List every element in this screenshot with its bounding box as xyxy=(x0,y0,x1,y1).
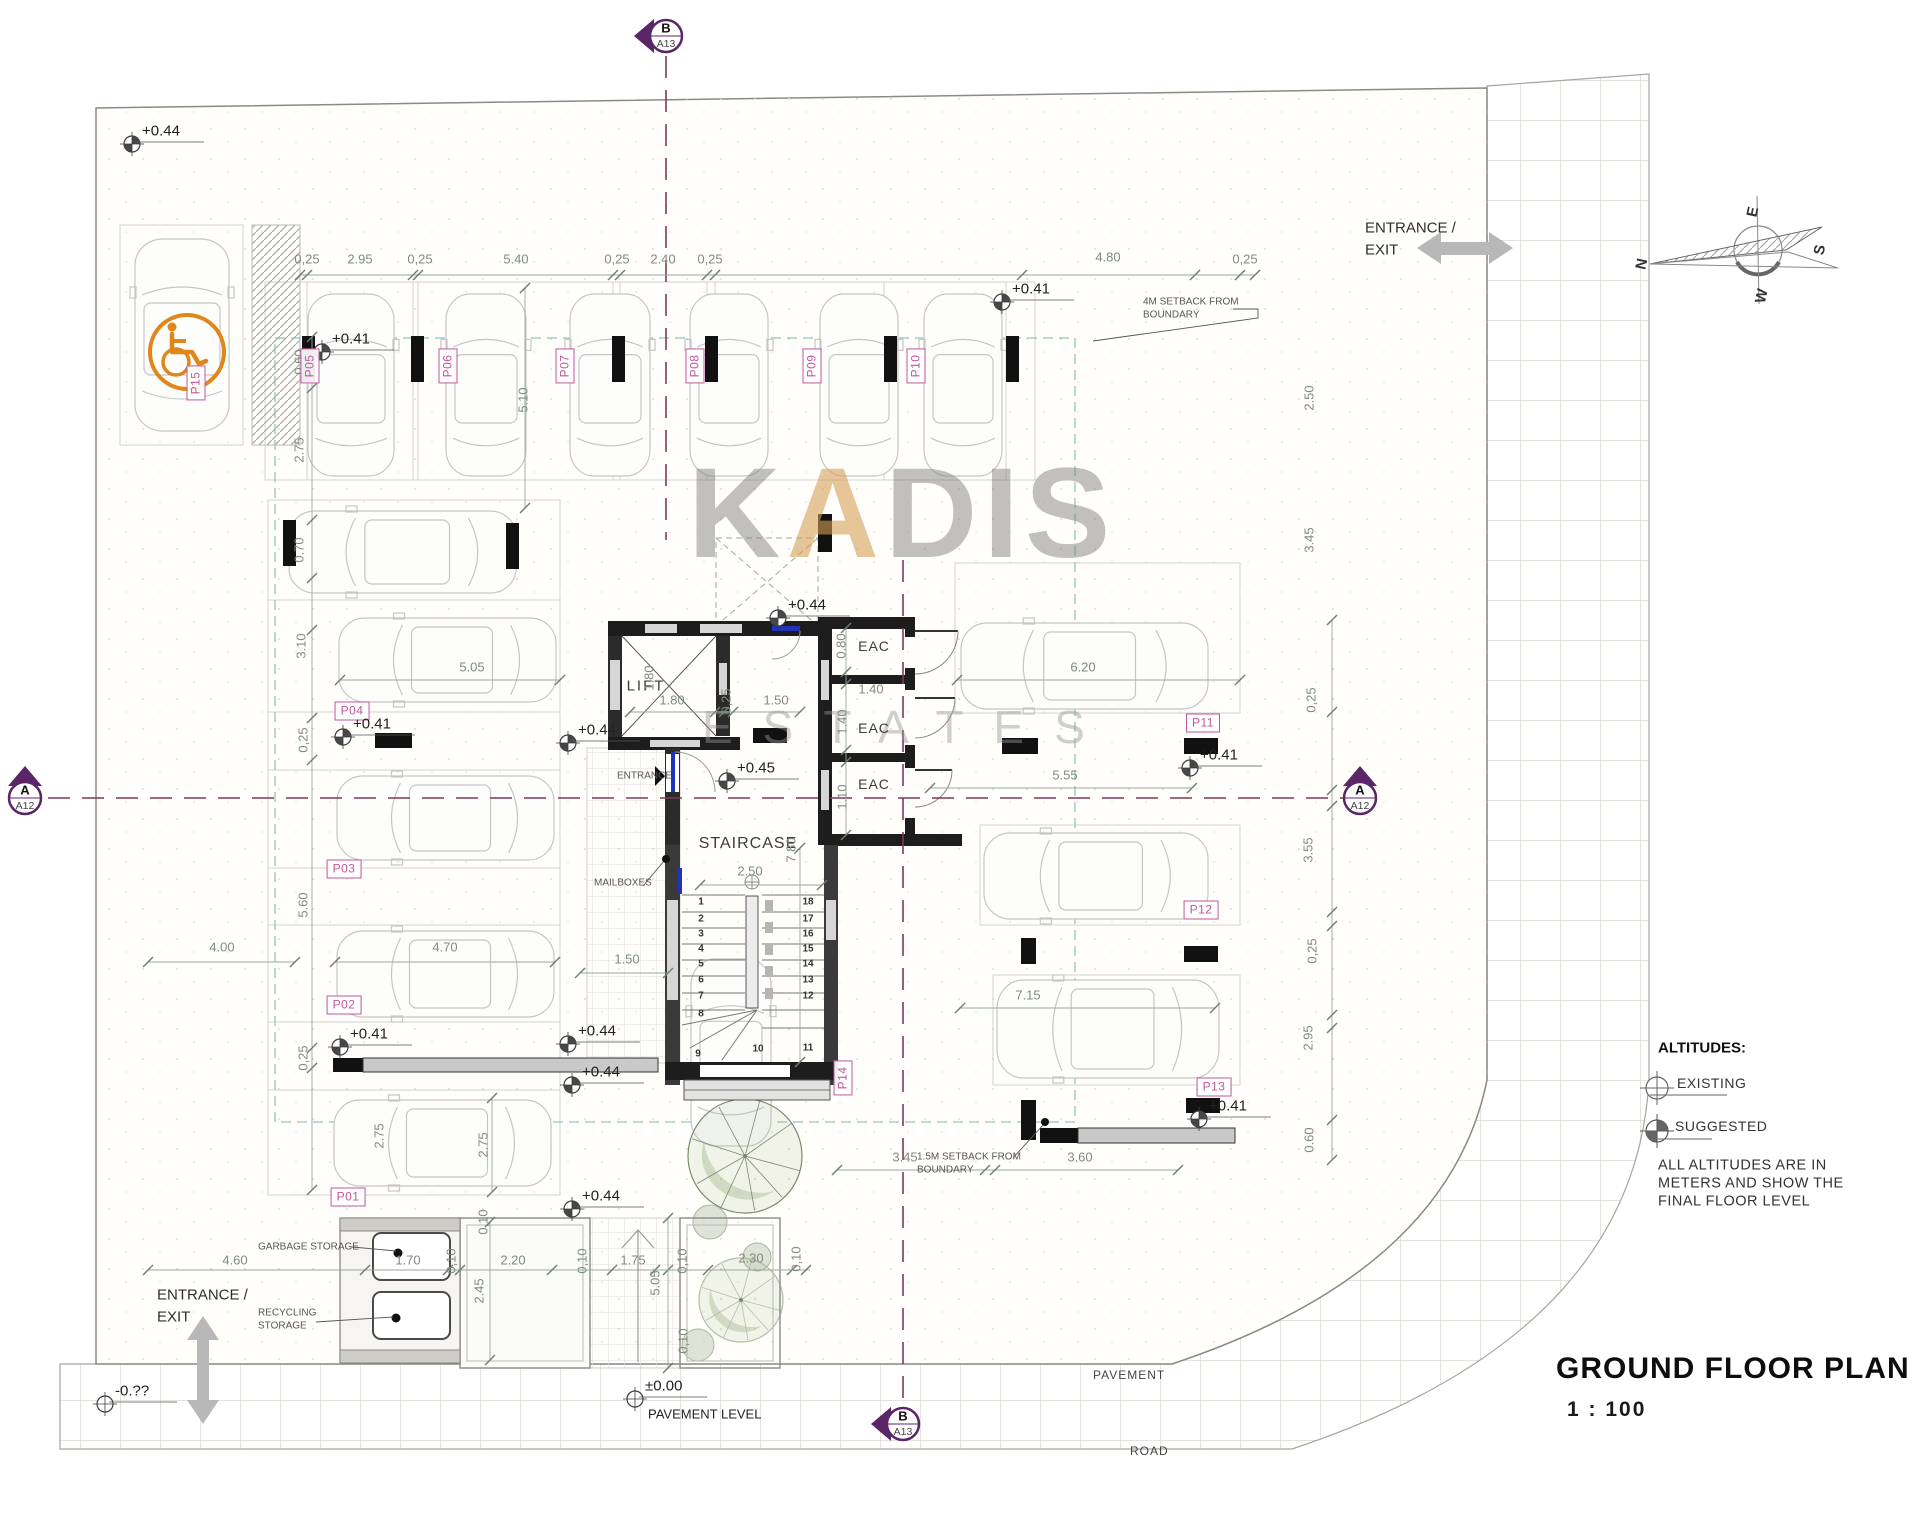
parking-spot-label: P13 xyxy=(1197,1078,1232,1097)
car-outline xyxy=(441,294,531,476)
dimension-label: 0,10 xyxy=(790,1246,805,1271)
dimension-label: 5.55 xyxy=(1052,769,1077,784)
text-label: STORAGE xyxy=(258,1320,307,1332)
parking-spot-label: P06 xyxy=(439,349,458,384)
parking-spot-label: P11 xyxy=(1186,714,1220,733)
legend-heading: ALTITUDES: xyxy=(1658,1039,1746,1056)
text-label: BOUNDARY xyxy=(1143,309,1200,321)
legend-note-2: METERS AND SHOW THE xyxy=(1658,1176,1844,1193)
altitude-value: +0.44 xyxy=(582,1063,620,1080)
parking-spot-label: P08 xyxy=(686,349,705,384)
stair-number: 18 xyxy=(802,896,813,908)
dimension-label: 2.95 xyxy=(1302,1025,1317,1050)
dimension-label: 4.70 xyxy=(432,941,457,956)
section-marker-top: A xyxy=(20,784,29,799)
parking-spot-label: P01 xyxy=(331,1188,366,1207)
text-label: 4M SETBACK FROM xyxy=(1143,296,1239,308)
car-outline xyxy=(337,771,554,865)
tree xyxy=(688,1099,802,1213)
tree xyxy=(699,1258,783,1342)
altitude-value: +0.41 xyxy=(1209,1097,1247,1114)
dimension-label: 0,25 xyxy=(297,727,312,752)
dimension-label: 2.75 xyxy=(373,1123,388,1148)
altitude-value: +0.41 xyxy=(353,715,391,732)
dimension-label: 0,25 xyxy=(407,253,432,268)
dimension-label: 0,10 xyxy=(676,1248,691,1273)
stair-number: 3 xyxy=(698,928,704,940)
recycling-bin-dot xyxy=(392,1314,401,1323)
text-label: MAILBOXES xyxy=(594,877,652,889)
handicap-hatch-strip xyxy=(252,225,300,445)
dimension-label: 0,25 xyxy=(1232,253,1257,268)
stair-number: 15 xyxy=(802,943,813,955)
text-label: EXIT xyxy=(157,1308,190,1325)
stair-number: 17 xyxy=(802,913,813,925)
text-label: BOUNDARY xyxy=(917,1164,974,1176)
dimension-label: 0,10 xyxy=(576,1248,591,1273)
text-label: STAIRCASE xyxy=(699,835,798,853)
parking-spot-label: P12 xyxy=(1184,901,1219,920)
text-label: PAVEMENT xyxy=(1093,1369,1165,1383)
watermark-brand: KADIS xyxy=(688,440,1116,587)
stair-number: 12 xyxy=(802,990,813,1002)
dimension-label: 0.60 xyxy=(1303,1127,1318,1152)
dimension-label: 1.80 xyxy=(659,694,684,709)
stair-number: 10 xyxy=(752,1043,763,1055)
section-marker-top: B xyxy=(661,22,670,37)
plan-linework xyxy=(0,0,1920,1517)
dimension-label: 0,25 xyxy=(294,253,319,268)
parking-spot-label: P10 xyxy=(907,349,926,384)
stair-number: 7 xyxy=(698,990,704,1002)
text-label: EXIT xyxy=(1365,241,1398,258)
stair-number: 2 xyxy=(698,913,704,925)
section-marker-top: B xyxy=(898,1410,907,1425)
text-label: RECYCLING xyxy=(258,1307,316,1319)
stair-number: 14 xyxy=(802,958,813,970)
dimension-label: 1.70 xyxy=(395,1254,420,1269)
dimension-label: 0,25 xyxy=(604,253,629,268)
car-outline xyxy=(289,506,516,598)
dimension-label: 1.40 xyxy=(836,709,851,734)
text-label: GARBAGE STORAGE xyxy=(258,1241,359,1253)
legend-note-1: ALL ALTITUDES ARE IN xyxy=(1658,1158,1827,1175)
stair-number: 6 xyxy=(698,974,704,986)
parking-spot-label: P15 xyxy=(187,366,206,401)
dimension-label: 7.15 xyxy=(1015,989,1040,1004)
dimension-label: 4.00 xyxy=(209,941,234,956)
text-label: ENTRANCE / xyxy=(1365,219,1456,236)
dimension-label: 0,10 xyxy=(445,1248,460,1273)
entrance-door-top xyxy=(772,626,800,631)
dimension-label: 2.50 xyxy=(1303,385,1318,410)
altitude-value: -0.?? xyxy=(115,1382,149,1399)
section-marker-top: A xyxy=(1355,784,1364,799)
parking-spot-label: P02 xyxy=(327,996,362,1015)
dimension-label: 5.05 xyxy=(459,661,484,676)
altitude-value: +0.41 xyxy=(350,1025,388,1042)
altitude-value: +0.44 xyxy=(788,596,826,613)
text-label: ENTRANCE / xyxy=(157,1286,248,1303)
text-label: EAC xyxy=(858,776,890,792)
legend-existing: EXISTING xyxy=(1677,1075,1746,1091)
stair-number: 1 xyxy=(698,896,704,908)
dimension-label: 0.70 xyxy=(293,537,308,562)
dimension-label: 1.75 xyxy=(620,1254,645,1269)
dimension-label: 2.50 xyxy=(737,865,762,880)
dimension-label: 2.75 xyxy=(477,1132,492,1157)
dimension-label: 1.50 xyxy=(614,953,639,968)
dimension-label: 4.60 xyxy=(222,1254,247,1269)
floor-plan-canvas: KADIS ESTATES GROUND FLOOR PLAN 1 : 100 … xyxy=(0,0,1920,1517)
dimension-label: 5.40 xyxy=(503,253,528,268)
stair-number: 4 xyxy=(698,943,704,955)
car-outline xyxy=(984,828,1208,924)
dimension-label: 1.40 xyxy=(858,683,883,698)
dimension-label: 4.80 xyxy=(1095,251,1120,266)
dimension-label: 0,10 xyxy=(677,1328,692,1353)
dimension-label: 3.10 xyxy=(295,633,310,658)
altitude-value: ±0.00 xyxy=(645,1377,682,1394)
stair-number: 13 xyxy=(802,974,813,986)
legend-suggested: SUGGESTED xyxy=(1675,1118,1767,1134)
text-label: EAC xyxy=(858,720,890,736)
dimension-label: 1.80 xyxy=(643,665,658,690)
dimension-label: 0,25 xyxy=(720,688,735,713)
dimension-label: 0,25 xyxy=(297,1045,312,1070)
dimension-label: 3.45 xyxy=(1303,527,1318,552)
altitude-value: +0.44 xyxy=(578,721,616,738)
text-label: 1.5M SETBACK FROM xyxy=(917,1151,1021,1163)
parking-spot-label: P14 xyxy=(834,1061,853,1096)
dimension-label: 2.40 xyxy=(650,253,675,268)
page-title: GROUND FLOOR PLAN xyxy=(1556,1352,1910,1386)
stair-number: 11 xyxy=(803,1042,814,1054)
stair-number: 9 xyxy=(695,1048,701,1060)
dimension-label: 0,25 xyxy=(1305,687,1320,712)
altitude-value: +0.41 xyxy=(1012,280,1050,297)
dimension-label: 3.55 xyxy=(1302,837,1317,862)
dimension-label: 3.60 xyxy=(1067,1151,1092,1166)
drawing-scale: 1 : 100 xyxy=(1567,1398,1646,1422)
section-marker-bottom: A12 xyxy=(1351,800,1370,812)
dimension-label: 0,25 xyxy=(1306,938,1321,963)
text-label: ENTRANCE xyxy=(617,770,672,782)
dimension-label: 3.45 xyxy=(892,1151,917,1166)
text-label: ROAD xyxy=(1130,1445,1169,1459)
dimension-label: 2.75 xyxy=(293,437,308,462)
dimension-label: 5.60 xyxy=(297,892,312,917)
legend-note-3: FINAL FLOOR LEVEL xyxy=(1658,1194,1810,1211)
dimension-label: 1.10 xyxy=(836,784,851,809)
section-marker-bottom: A13 xyxy=(894,1426,913,1438)
pavement-level-label: PAVEMENT LEVEL xyxy=(648,1408,761,1423)
stair-number: 16 xyxy=(802,928,813,940)
dimension-label: 2.45 xyxy=(473,1278,488,1303)
text-label: EAC xyxy=(858,638,890,654)
section-marker-bottom: A12 xyxy=(16,800,35,812)
parking-spot-label: P05 xyxy=(301,349,320,384)
dimension-label: 0,10 xyxy=(477,1209,492,1234)
bush xyxy=(693,1205,727,1239)
altitude-value: +0.44 xyxy=(582,1187,620,1204)
altitude-value: +0.44 xyxy=(578,1022,616,1039)
watermark-a: A xyxy=(786,442,884,585)
car-outline xyxy=(334,1095,551,1191)
garbage-recycling-structure xyxy=(340,1218,460,1363)
dimension-label: 0,25 xyxy=(697,253,722,268)
car-outline xyxy=(565,294,655,476)
dimension-label: 5.10 xyxy=(517,387,532,412)
altitude-value: +0.44 xyxy=(142,122,180,139)
stair-number: 5 xyxy=(698,958,704,970)
altitude-value: +0.41 xyxy=(1200,746,1238,763)
altitude-value: +0.41 xyxy=(332,330,370,347)
dimension-label: 6.20 xyxy=(1070,661,1095,676)
section-marker-bottom: A13 xyxy=(657,38,676,50)
parking-spot-label: P03 xyxy=(327,860,362,879)
car-outline xyxy=(339,613,556,707)
altitude-value: +0.45 xyxy=(737,759,775,776)
parking-spot-label: P07 xyxy=(556,349,575,384)
dimension-label: 7.80 xyxy=(785,837,800,862)
stair-number: 8 xyxy=(698,1008,704,1020)
dimension-label: 5.05 xyxy=(649,1270,664,1295)
dimension-label: 2.20 xyxy=(500,1254,525,1269)
parking-spot-label: P09 xyxy=(803,349,822,384)
dimension-label: 2.30 xyxy=(738,1252,763,1267)
dimension-label: 2.95 xyxy=(347,253,372,268)
car-outline xyxy=(303,294,399,476)
dimension-label: 1.50 xyxy=(763,694,788,709)
dimension-label: 0.80 xyxy=(835,633,850,658)
